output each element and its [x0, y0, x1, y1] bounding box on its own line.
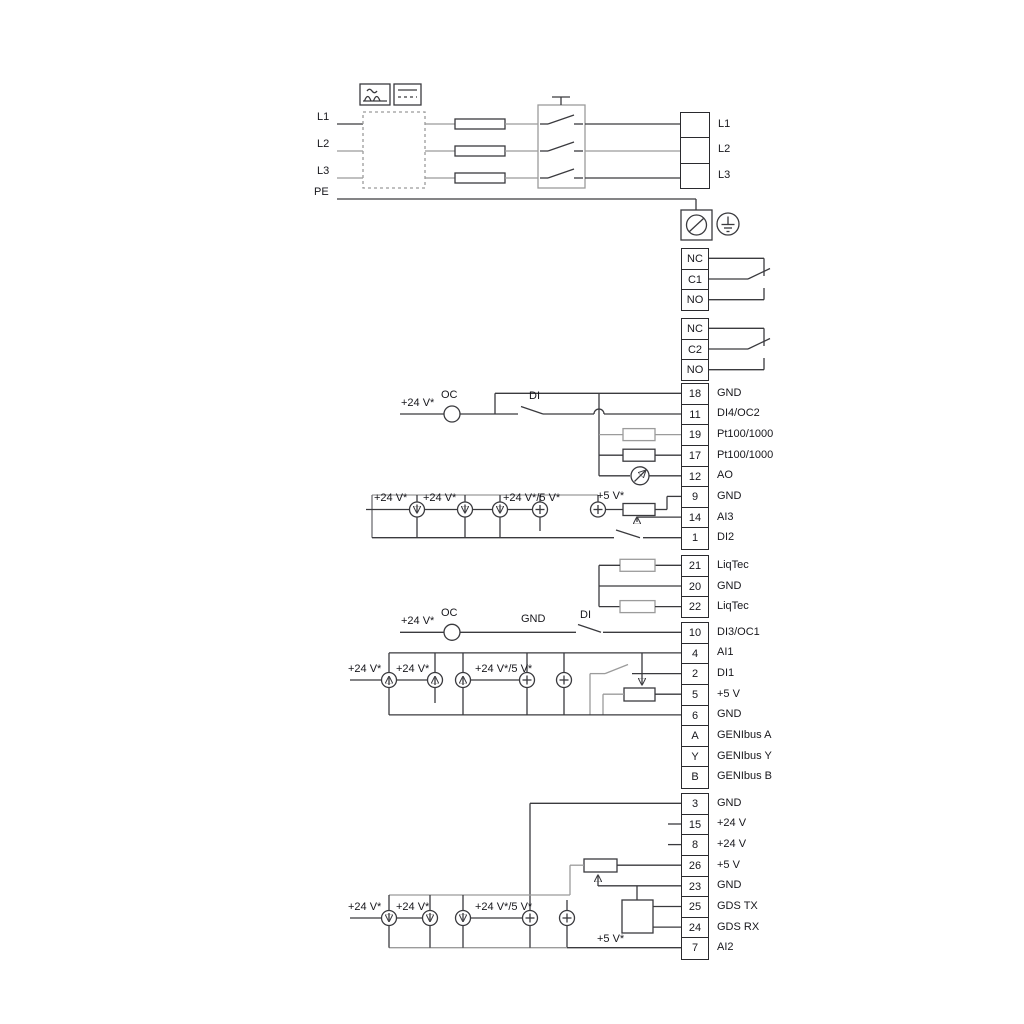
- di4-switch-blade: [521, 407, 543, 415]
- liqtec-sensor-2: [620, 601, 655, 613]
- terminal-cell: 22: [681, 596, 709, 618]
- terminal-cell: NC: [681, 318, 709, 340]
- terminal-cell: C2: [681, 339, 709, 361]
- wire-label-24v: +24 V*: [401, 615, 434, 628]
- potentiometer-ai3: [623, 504, 655, 516]
- pt100-sensor-2: [623, 449, 655, 461]
- potentiometer-ai1: [624, 688, 655, 701]
- relay-1-contact: [709, 258, 770, 299]
- relay-2-contact: [709, 328, 770, 369]
- terminal-cell: 11: [681, 404, 709, 426]
- fuse-l1: [455, 119, 505, 129]
- gds-sensor-box: [622, 900, 653, 933]
- mains-in-l1-label: L1: [317, 111, 329, 124]
- terminal-cell: 3: [681, 793, 709, 815]
- open-collector-icon: [444, 406, 460, 422]
- terminal-label: AO: [717, 469, 733, 482]
- wire-label-5v: +5 V*: [597, 490, 624, 503]
- terminal-label: Pt100/1000: [717, 428, 773, 441]
- terminal-cell: 9: [681, 486, 709, 508]
- potentiometer-ai2: [584, 859, 617, 872]
- wire-label-24v-5v: +24 V*/5 V*: [475, 901, 532, 914]
- terminal-label: GND: [717, 879, 741, 892]
- terminal-label: GENIbus B: [717, 770, 772, 783]
- terminal-label: GND: [717, 797, 741, 810]
- mains-in-l2-label: L2: [317, 138, 329, 151]
- emc-filter-box: [363, 112, 425, 188]
- terminal-label: DI1: [717, 667, 734, 680]
- terminal-cell: [680, 137, 710, 164]
- terminal-cell: 7: [681, 937, 709, 959]
- io-strip-1-wiring: [366, 393, 681, 537]
- power-input-section: [337, 84, 739, 240]
- wire-label-gnd: GND: [521, 613, 545, 626]
- terminal-label: L3: [718, 169, 730, 182]
- earth-ground-icon: [717, 213, 739, 235]
- wire-label-di: DI: [529, 390, 540, 403]
- terminal-label: GDS TX: [717, 900, 758, 913]
- pe-label: PE: [314, 186, 329, 199]
- wire-label-24v-5v: +24 V*/5 V*: [503, 492, 560, 505]
- terminal-label: GND: [717, 387, 741, 400]
- terminal-cell: A: [681, 725, 709, 747]
- wiring-diagram-canvas: L1 L2 L3 PE +24 V* OC DI +24 V* +24 V* +…: [0, 0, 1024, 1024]
- di2-switch-blade: [616, 530, 640, 538]
- terminal-label: DI3/OC1: [717, 626, 760, 639]
- terminal-cell: 26: [681, 855, 709, 877]
- liqtec-wiring: [599, 559, 681, 612]
- terminal-cell: Y: [681, 746, 709, 768]
- wire-label-oc: OC: [441, 607, 458, 620]
- terminal-cell: 4: [681, 643, 709, 665]
- terminal-label: AI2: [717, 941, 734, 954]
- wire-label-24v: +24 V*: [396, 901, 429, 914]
- terminal-label: GND: [717, 580, 741, 593]
- wire-label-24v: +24 V*: [401, 397, 434, 410]
- wire-label-24v-5v: +24 V*/5 V*: [475, 663, 532, 676]
- terminal-label: Pt100/1000: [717, 449, 773, 462]
- dc-symbol-icon: [394, 84, 421, 105]
- terminal-label: GDS RX: [717, 921, 759, 934]
- pt100-sensor-1: [623, 429, 655, 441]
- terminal-label: LiqTec: [717, 559, 749, 572]
- wire-label-5v: +5 V*: [597, 933, 624, 946]
- terminal-cell: NC: [681, 248, 709, 270]
- terminal-cell: 23: [681, 876, 709, 898]
- wire-label-di: DI: [580, 609, 591, 622]
- terminal-cell: 5: [681, 684, 709, 706]
- fuse-l2: [455, 146, 505, 156]
- wire-label-24v: +24 V*: [348, 663, 381, 676]
- terminal-label: +5 V: [717, 859, 740, 872]
- ac-symbol-icon: [360, 84, 390, 105]
- wire-label-24v: +24 V*: [374, 492, 407, 505]
- terminal-cell: 25: [681, 896, 709, 918]
- terminal-cell: 18: [681, 383, 709, 405]
- terminal-cell: 10: [681, 622, 709, 644]
- di1-switch-blade: [605, 665, 628, 674]
- wire-label-24v: +24 V*: [348, 901, 381, 914]
- terminal-label: LiqTec: [717, 600, 749, 613]
- terminal-cell: [680, 112, 710, 139]
- wire-label-24v: +24 V*: [423, 492, 456, 505]
- open-collector-icon: [444, 624, 460, 640]
- pe-terminal-icon: [681, 210, 712, 240]
- terminal-cell: 6: [681, 705, 709, 727]
- terminal-cell: [680, 163, 710, 190]
- terminal-cell: C1: [681, 269, 709, 291]
- terminal-label: +24 V: [717, 838, 746, 851]
- terminal-label: DI4/OC2: [717, 407, 760, 420]
- mains-in-l3-label: L3: [317, 165, 329, 178]
- fuse-l3: [455, 173, 505, 183]
- terminal-cell: 1: [681, 527, 709, 549]
- terminal-cell: NO: [681, 359, 709, 381]
- terminal-cell: 14: [681, 507, 709, 529]
- di3-switch-blade: [578, 625, 601, 633]
- terminal-label: AI3: [717, 511, 734, 524]
- wire-label-24v: +24 V*: [396, 663, 429, 676]
- terminal-cell: 17: [681, 445, 709, 467]
- terminal-label: GND: [717, 708, 741, 721]
- terminal-cell: 21: [681, 555, 709, 577]
- terminal-cell: 2: [681, 663, 709, 685]
- terminal-cell: 12: [681, 466, 709, 488]
- wire-label-oc: OC: [441, 389, 458, 402]
- terminal-cell: B: [681, 766, 709, 788]
- terminal-cell: NO: [681, 289, 709, 311]
- terminal-cell: 8: [681, 834, 709, 856]
- terminal-label: L2: [718, 143, 730, 156]
- terminal-cell: 20: [681, 576, 709, 598]
- liqtec-sensor-1: [620, 559, 655, 571]
- terminal-label: L1: [718, 118, 730, 131]
- terminal-cell: 19: [681, 424, 709, 446]
- terminal-label: +24 V: [717, 817, 746, 830]
- terminal-label: DI2: [717, 531, 734, 544]
- terminal-label: GND: [717, 490, 741, 503]
- wiring-layer: [0, 0, 1024, 1024]
- terminal-cell: 24: [681, 917, 709, 939]
- terminal-label: GENIbus A: [717, 729, 771, 742]
- disconnect-switch: [538, 97, 585, 188]
- terminal-label: AI1: [717, 646, 734, 659]
- terminal-label: GENIbus Y: [717, 750, 772, 763]
- terminal-label: +5 V: [717, 688, 740, 701]
- terminal-cell: 15: [681, 814, 709, 836]
- io-strip-3-wiring: [350, 803, 681, 947]
